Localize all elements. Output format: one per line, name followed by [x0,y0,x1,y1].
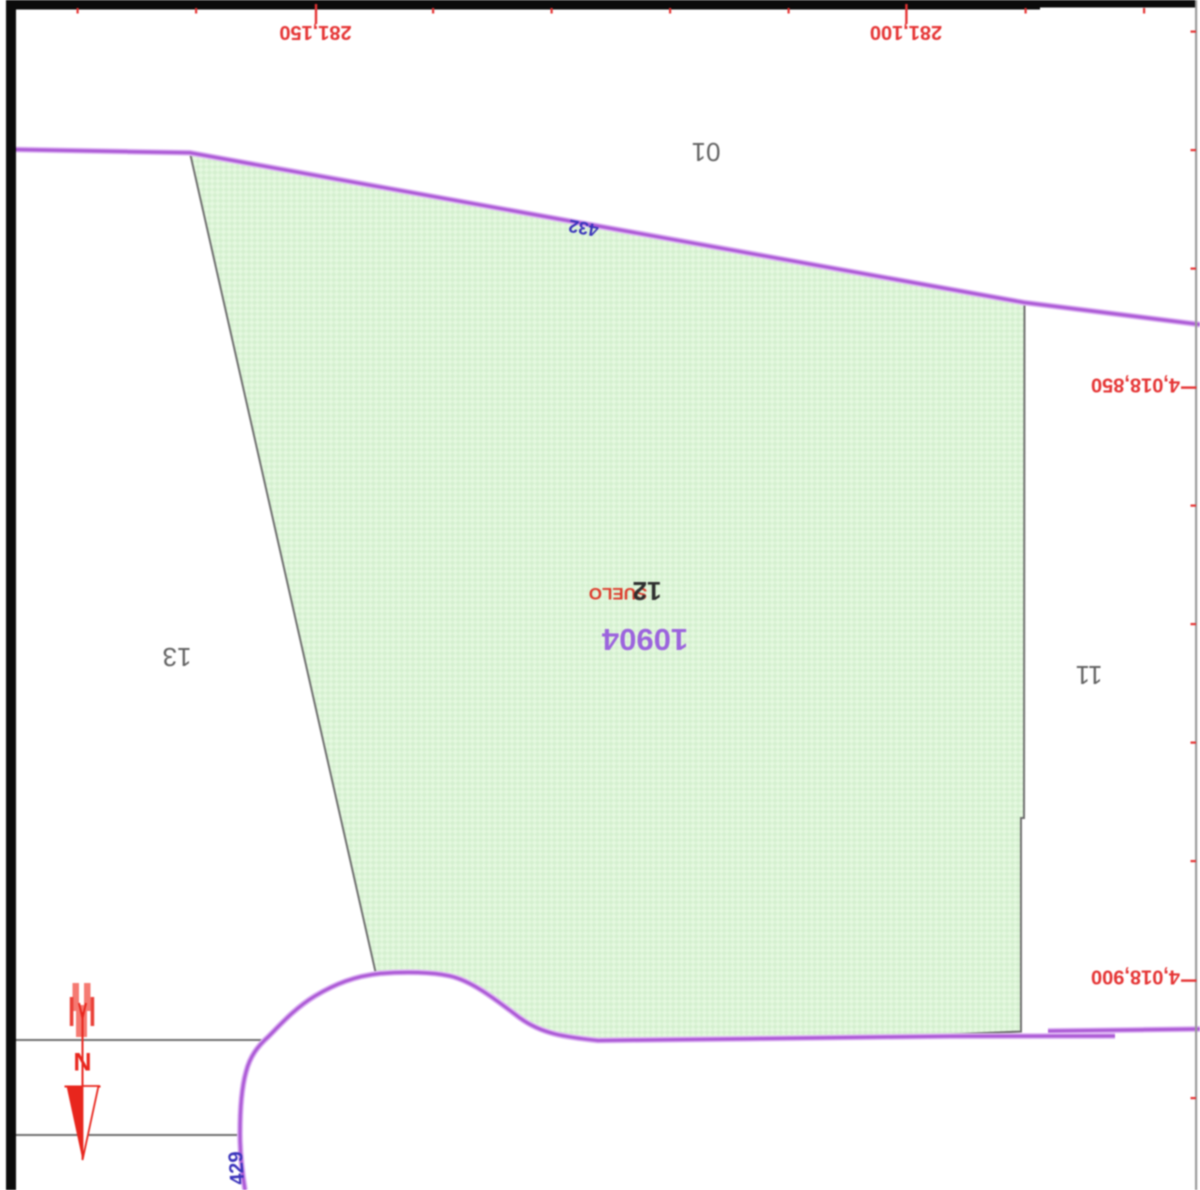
svg-text:11: 11 [1076,660,1103,690]
svg-text:281,150: 281,150 [279,21,351,43]
svg-text:4,018,900: 4,018,900 [1091,966,1180,988]
svg-text:12: 12 [633,576,662,606]
svg-text:281,100: 281,100 [870,21,942,43]
svg-text:4,018,850: 4,018,850 [1091,374,1180,396]
svg-text:01: 01 [692,137,721,167]
svg-text:429: 429 [225,1151,249,1186]
svg-text:N: N [73,1047,91,1075]
svg-text:10904: 10904 [601,622,688,657]
svg-text:13: 13 [163,642,192,672]
